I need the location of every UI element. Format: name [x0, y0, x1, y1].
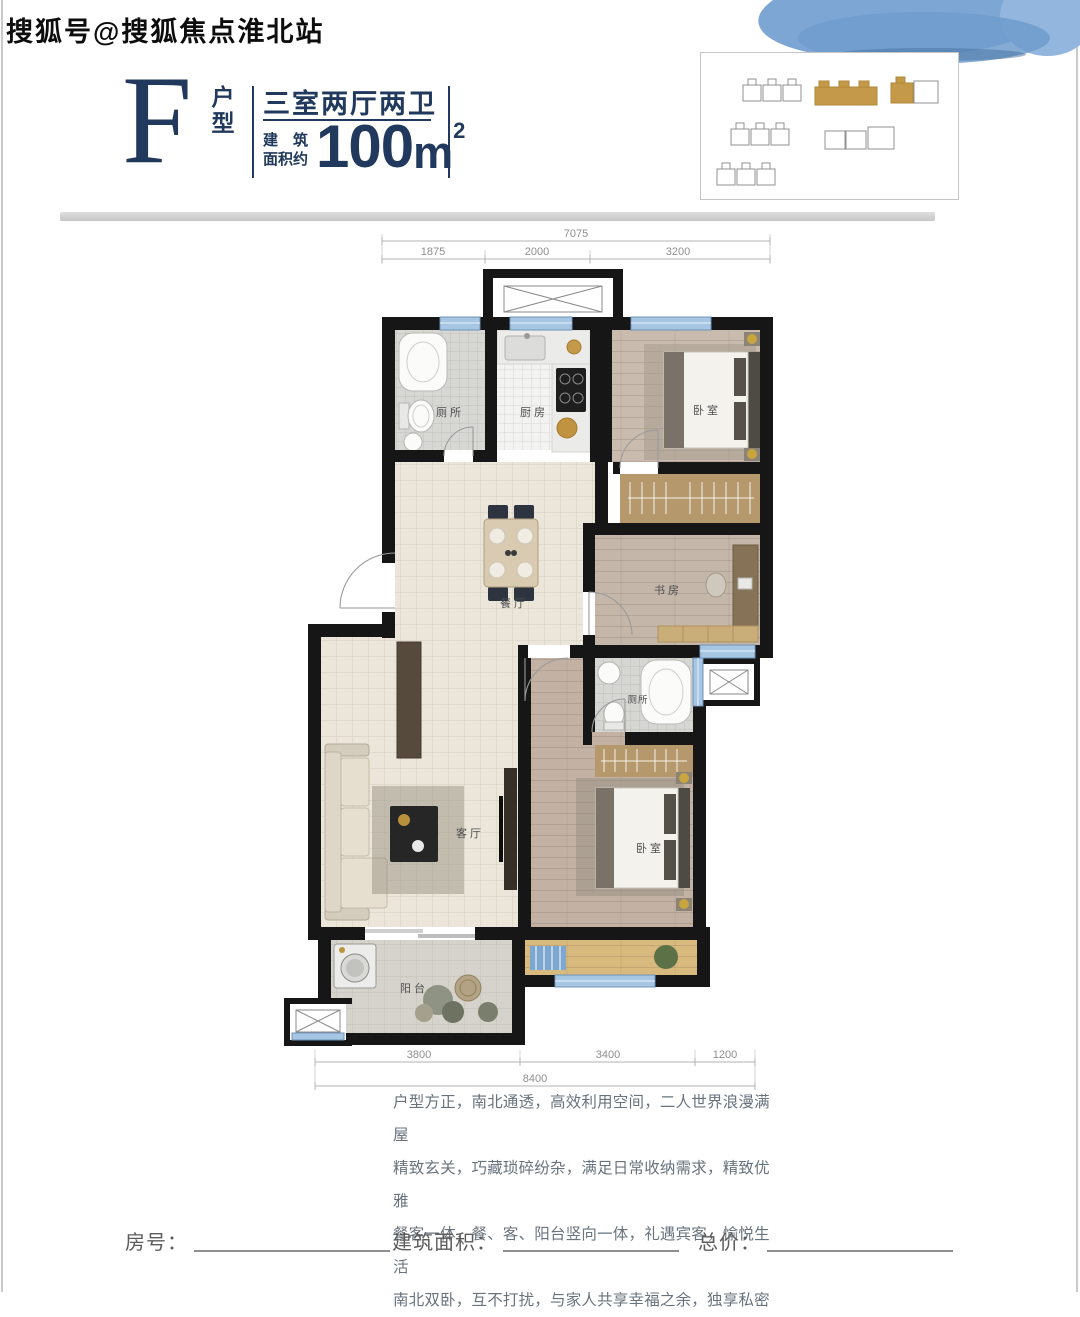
site-map — [700, 52, 959, 200]
area-value: 100 — [316, 118, 413, 176]
sliding-door — [365, 929, 475, 938]
room-label-balcony: 阳台 — [400, 981, 428, 995]
area-label-line2: 面积约 — [263, 150, 308, 169]
tv-icon — [499, 796, 503, 862]
toilet-icon — [604, 702, 624, 730]
description-line: 精致玄关，巧藏琐碎纷杂，满足日常收纳需求，精致优雅 — [393, 1152, 773, 1218]
room-label-dining: 餐厅 — [500, 596, 528, 610]
site-building-partial — [914, 81, 938, 103]
room-label-study: 书房 — [654, 584, 682, 597]
lamp-icon — [679, 773, 689, 783]
dim-bottom-1: 3800 — [407, 1049, 431, 1061]
bathtub-icon — [641, 660, 691, 724]
area-label: 建 筑 面积约 — [263, 131, 308, 169]
area-figure: 100 m 2 — [316, 118, 465, 188]
toilet-icon — [399, 400, 434, 432]
dim-total-bottom: 8400 — [523, 1073, 547, 1085]
dim-top-3: 3200 — [666, 246, 690, 258]
lamp-icon — [747, 334, 757, 344]
field-built-area: 建筑面积： — [392, 1226, 679, 1255]
chair-icon — [706, 573, 726, 597]
page-left-border — [1, 0, 3, 1292]
stove-icon — [556, 368, 586, 412]
room-label-toilet-top: 厕所 — [436, 406, 464, 419]
room-label-living: 客厅 — [456, 826, 484, 840]
entry-cabinet — [397, 642, 421, 758]
wok-icon — [557, 418, 577, 438]
description-line: 南北双卧，互不打扰，与家人共享幸福之余，独享私密 — [393, 1284, 773, 1317]
bed-top — [644, 332, 760, 461]
dim-total-top: 7075 — [564, 228, 588, 240]
dim-top-2: 2000 — [525, 246, 549, 258]
field-built-area-blank — [503, 1250, 679, 1252]
room-label-toilet-bottom: 厕所 — [627, 695, 648, 706]
room-label-bedroom-top: 卧室 — [693, 403, 721, 417]
bed-bottom — [576, 772, 692, 911]
field-total-price-blank — [767, 1250, 953, 1252]
section-divider — [60, 212, 935, 221]
floor-plan: 厕所 厨房 卧室 书房 餐厅 客厅 厕所 卧室 阳台 7075 1875 200… — [260, 228, 800, 1100]
field-total-price: 总价： — [698, 1226, 953, 1255]
dimensions-bottom: 3800 3400 1200 8400 — [315, 1049, 755, 1090]
field-built-area-label: 建筑面积： — [392, 1226, 497, 1255]
wicker-chair-icon — [455, 975, 481, 1001]
header-divider-right — [448, 86, 450, 178]
description: 户型方正，南北通透，高效利用空间，二人世界浪漫满屋 精致玄关，巧藏琐碎纷杂，满足… — [393, 1086, 773, 1317]
dim-top-1: 1875 — [421, 246, 445, 258]
header-divider-left — [252, 86, 254, 178]
kitchen-sink-icon — [505, 336, 545, 360]
dining-table — [484, 505, 538, 601]
unit-type-letter: F — [122, 58, 192, 184]
plant-icon — [654, 945, 678, 969]
sink-icon — [404, 433, 422, 451]
area-label-line1: 建 筑 — [263, 131, 308, 150]
mat-icon — [530, 946, 566, 970]
site-building-highlighted — [815, 77, 913, 105]
lamp-icon — [679, 899, 689, 909]
field-room-number-blank — [194, 1250, 390, 1252]
dim-bottom-3: 1200 — [713, 1049, 737, 1061]
bathtub-icon — [399, 333, 447, 391]
field-room-number: 房号： — [125, 1226, 390, 1255]
unit-type-label: 户型 — [210, 84, 236, 136]
dim-bottom-2: 3400 — [596, 1049, 620, 1061]
area-superscript: 2 — [453, 120, 465, 142]
field-total-price-label: 总价： — [698, 1226, 761, 1255]
dimensions-top: 7075 1875 2000 3200 — [382, 228, 770, 264]
lamp-icon — [747, 449, 757, 459]
coffee-table — [390, 806, 438, 862]
room-label-kitchen: 厨房 — [520, 406, 548, 419]
room-label-bedroom-bottom: 卧室 — [636, 841, 664, 855]
kettle-icon — [567, 340, 581, 354]
description-line: 户型方正，南北通透，高效利用空间，二人世界浪漫满屋 — [393, 1086, 773, 1152]
field-room-number-label: 房号： — [125, 1226, 188, 1255]
sink-icon — [598, 662, 620, 684]
washing-machine-icon — [334, 944, 376, 988]
watermark: 搜狐号@搜狐焦点淮北站 — [6, 10, 324, 49]
page-right-border — [1076, 0, 1078, 1292]
